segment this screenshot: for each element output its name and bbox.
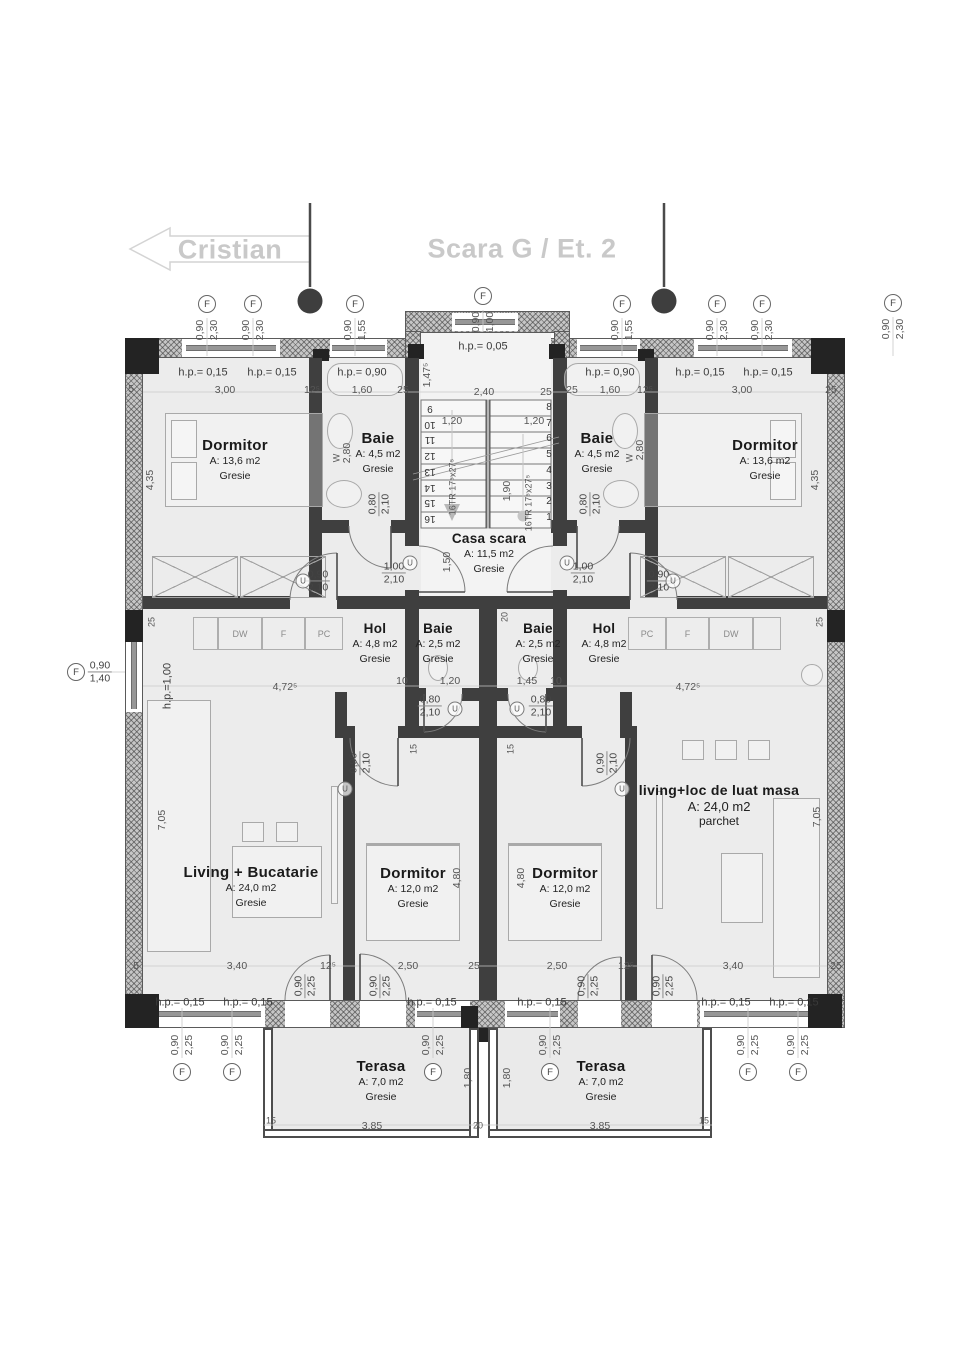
- dimension-label: 15: [507, 744, 516, 754]
- dimension-label: 20: [501, 612, 510, 622]
- stair-step-number: 11: [425, 434, 435, 444]
- dimension-label: 16TR 17⁵x27⁵: [525, 475, 534, 532]
- dimension-label: 12⁵: [320, 961, 336, 972]
- dimension-label: 1,60: [600, 385, 620, 396]
- page-title: Scara G / Et. 2: [427, 234, 616, 265]
- dimension-label: 4,35: [145, 470, 156, 490]
- stair-step-number: 14: [424, 482, 435, 492]
- stair-step-number: 1: [546, 513, 552, 523]
- dimension-label: 7,05: [157, 810, 168, 830]
- door-symbol-u: U: [666, 574, 681, 589]
- door-size-label: 0,902,25: [650, 974, 675, 998]
- dimension-label: 1,55: [357, 320, 368, 340]
- dimension-label: 2,25: [435, 1035, 446, 1055]
- dimension-label: h.p.= 0,90: [337, 368, 386, 379]
- dimension-label: 2,25: [750, 1035, 761, 1055]
- dimension-label: 1,20: [440, 676, 460, 687]
- dimension-label: 25: [566, 385, 578, 396]
- room-hol-left: Hol A: 4,8 m2 Gresie: [340, 620, 410, 667]
- dimension-label: 4,72⁵: [273, 682, 298, 693]
- dimension-label: 12⁵: [637, 385, 653, 396]
- door-size-label: 0,902,25: [367, 974, 392, 998]
- dimension-label: 2,40: [474, 387, 494, 398]
- dimension-label: 10: [550, 676, 562, 687]
- dimension-label: W: [333, 454, 342, 463]
- stair-step-number: 3: [546, 482, 552, 492]
- door-size-label: 0,902,25: [292, 974, 317, 998]
- dimension-label: h.p.= 0,15: [155, 998, 204, 1009]
- dimension-label: 2,30: [764, 320, 775, 340]
- dimension-label: 0,90: [538, 1035, 549, 1055]
- floor-plan: DW F PC PC F DW: [0, 0, 967, 1369]
- stair-step-number: 15: [424, 497, 435, 507]
- dimension-label: 5: [133, 961, 139, 972]
- window-marker-icon: F: [67, 663, 85, 681]
- dimension-label: 5: [128, 384, 134, 395]
- dimension-label: 0,90: [170, 1035, 181, 1055]
- room-dormitor-left: Dormitor A: 13,6 m2 Gresie: [160, 437, 310, 484]
- door-size-label: 0,802,10: [529, 693, 553, 718]
- dimension-label: 0,90: [786, 1035, 797, 1055]
- plan-linework: [0, 0, 967, 1369]
- dimension-label: 2,50: [547, 961, 567, 972]
- dimension-label: 4,80: [516, 868, 527, 888]
- window-marker-icon: F: [753, 295, 771, 313]
- dimension-label: W: [626, 454, 635, 463]
- dimension-label: h.p.= 0,05: [458, 342, 507, 353]
- dimension-label: 2,30: [255, 320, 266, 340]
- dimension-label: 3,00: [215, 385, 235, 396]
- room-hol-right: Hol A: 4,8 m2 Gresie: [569, 620, 639, 667]
- dimension-label: 2,25: [552, 1035, 563, 1055]
- dimension-label: 1,47⁵: [422, 363, 433, 388]
- stair-step-number: 7: [546, 419, 552, 429]
- window-marker-icon: F: [474, 287, 492, 305]
- dimension-label: 2,30: [895, 319, 906, 339]
- dimension-label: 1,45: [517, 676, 537, 687]
- window-marker-icon: F: [198, 295, 216, 313]
- dimension-label: 0,90: [471, 312, 482, 332]
- dimension-label: 15: [266, 1117, 276, 1126]
- door-symbol-u: U: [448, 702, 463, 717]
- dimension-label: 25: [540, 387, 552, 398]
- dimension-label: h.p.= 0,15: [407, 998, 456, 1009]
- dimension-label: 3,85: [362, 1121, 382, 1132]
- room-living-left: Living + Bucatarie A: 24,0 m2 Gresie: [156, 864, 346, 911]
- window-marker-icon: F: [346, 295, 364, 313]
- dimension-label: h.p.=1,00: [163, 663, 174, 709]
- door-size-label: 0,802,10: [577, 492, 602, 516]
- door-size-label: 0,802,10: [418, 693, 442, 718]
- window-marker-icon: F: [173, 1063, 191, 1081]
- dimension-label: 10: [396, 676, 408, 687]
- dimension-label: 25: [468, 961, 480, 972]
- door-symbol-u: U: [560, 556, 575, 571]
- room-baie-small-left: Baie A: 2,5 m2 Gresie: [407, 620, 469, 667]
- dimension-label: 3,40: [723, 961, 743, 972]
- dimension-label: 3,85: [590, 1121, 610, 1132]
- stair-step-number: 2: [546, 497, 552, 507]
- door-size-label: 0,902,25: [575, 974, 600, 998]
- dimension-label: 1,60: [352, 385, 372, 396]
- dimension-label: 3,00: [732, 385, 752, 396]
- dimension-label: 0,90: [736, 1035, 747, 1055]
- door-size-label: 0,902,10: [594, 751, 619, 775]
- dimension-label: 2,30: [209, 320, 220, 340]
- dimension-label: 12⁵: [618, 961, 634, 972]
- stair-step-number: 10: [424, 419, 435, 429]
- window-marker-icon: F: [424, 1063, 442, 1081]
- window-marker-icon: F: [739, 1063, 757, 1081]
- door-symbol-u: U: [615, 782, 630, 797]
- dimension-label: 1,20: [442, 416, 462, 427]
- door-symbol-u: U: [338, 782, 353, 797]
- dimension-label: h.p.= 0,15: [178, 368, 227, 379]
- dimension-label: 15: [410, 744, 419, 754]
- dimension-label: 12⁵: [304, 385, 320, 396]
- stair-step-number: 16: [424, 513, 435, 523]
- dimension-label: h.p.= 0,15: [743, 368, 792, 379]
- dimension-label: 0,90: [343, 320, 354, 340]
- dimension-label: h.p.= 0,15: [223, 998, 272, 1009]
- dimension-label: 7,05: [812, 807, 823, 827]
- dimension-label: 0,90: [610, 320, 621, 340]
- window-marker-icon: F: [789, 1063, 807, 1081]
- dimension-label: 25: [148, 617, 157, 627]
- dimension-label: 1,80: [463, 1068, 474, 1088]
- dimension-label: 2,25: [800, 1035, 811, 1055]
- dimension-label: h.p.= 0,15: [517, 998, 566, 1009]
- dimension-label: 25: [825, 385, 837, 396]
- dimension-label: 4,35: [810, 470, 821, 490]
- dimension-label: 25: [397, 385, 409, 396]
- dimension-label: 25: [816, 617, 825, 627]
- dimension-label: 2,25: [184, 1035, 195, 1055]
- dimension-label: 4,72⁵: [676, 682, 701, 693]
- door-symbol-u: U: [296, 574, 311, 589]
- dimension-label: 1,90: [502, 481, 513, 501]
- dimension-label: 0,90: [421, 1035, 432, 1055]
- dimension-label: 16TR 17⁵x27⁵: [449, 459, 458, 516]
- dimension-label: h.p.= 0,15: [769, 998, 818, 1009]
- neighbor-label: Cristian: [178, 235, 283, 266]
- dimension-label: 15: [699, 1117, 709, 1126]
- window-marker-icon: F: [541, 1063, 559, 1081]
- dimension-label: 20: [473, 1122, 483, 1131]
- door-size-label: 1,002,10: [571, 560, 595, 585]
- door-size-label: 0,902,10: [347, 751, 372, 775]
- window-marker-icon: F: [613, 295, 631, 313]
- window-marker-icon: F: [244, 295, 262, 313]
- dimension-label: h.p.= 0,90: [585, 368, 634, 379]
- stair-step-number: 4: [546, 466, 552, 476]
- stair-step-number: 12: [424, 450, 435, 460]
- stair-step-number: 5: [546, 450, 552, 460]
- dimension-label: 1,50: [442, 552, 453, 572]
- door-size-label: 0,802,10: [366, 492, 391, 516]
- dimension-label: 2,80: [342, 443, 353, 463]
- dimension-label: 2,30: [719, 320, 730, 340]
- dimension-label: 1,20: [524, 416, 544, 427]
- dimension-label: 1,00: [485, 312, 496, 332]
- dimension-label: 1,55: [624, 320, 635, 340]
- window-marker-icon: F: [708, 295, 726, 313]
- dimension-label: 0,90: [881, 319, 892, 339]
- stair-step-number: 9: [427, 403, 433, 413]
- stair-step-number: 13: [424, 466, 435, 476]
- dimension-label: 1,80: [502, 1068, 513, 1088]
- window-marker-icon: F: [884, 294, 902, 312]
- door-symbol-u: U: [403, 556, 418, 571]
- dimension-label: 25: [830, 961, 842, 972]
- stair-step-number: 6: [546, 434, 552, 444]
- dimension-label: h.p.= 0,15: [701, 998, 750, 1009]
- dimension-label: 2,80: [635, 440, 646, 460]
- door-size-label: 0,901,40: [88, 659, 112, 684]
- dimension-label: 3,40: [227, 961, 247, 972]
- dimension-label: h.p.= 0,15: [247, 368, 296, 379]
- stair-step-number: 8: [546, 403, 552, 413]
- dimension-label: 0,90: [195, 320, 206, 340]
- dimension-label: 0,90: [220, 1035, 231, 1055]
- dimension-label: 0,90: [241, 320, 252, 340]
- dimension-label: 2,50: [398, 961, 418, 972]
- dimension-label: 0,90: [705, 320, 716, 340]
- window-marker-icon: F: [223, 1063, 241, 1081]
- dimension-label: 0,90: [750, 320, 761, 340]
- room-living-right: living+loc de luat masa A: 24,0 m2 parch…: [624, 782, 814, 829]
- dimension-label: 2,25: [234, 1035, 245, 1055]
- room-baie-small-right: Baie A: 2,5 m2 Gresie: [507, 620, 569, 667]
- door-symbol-u: U: [510, 702, 525, 717]
- dimension-label: 4,80: [452, 868, 463, 888]
- dimension-label: h.p.= 0,15: [675, 368, 724, 379]
